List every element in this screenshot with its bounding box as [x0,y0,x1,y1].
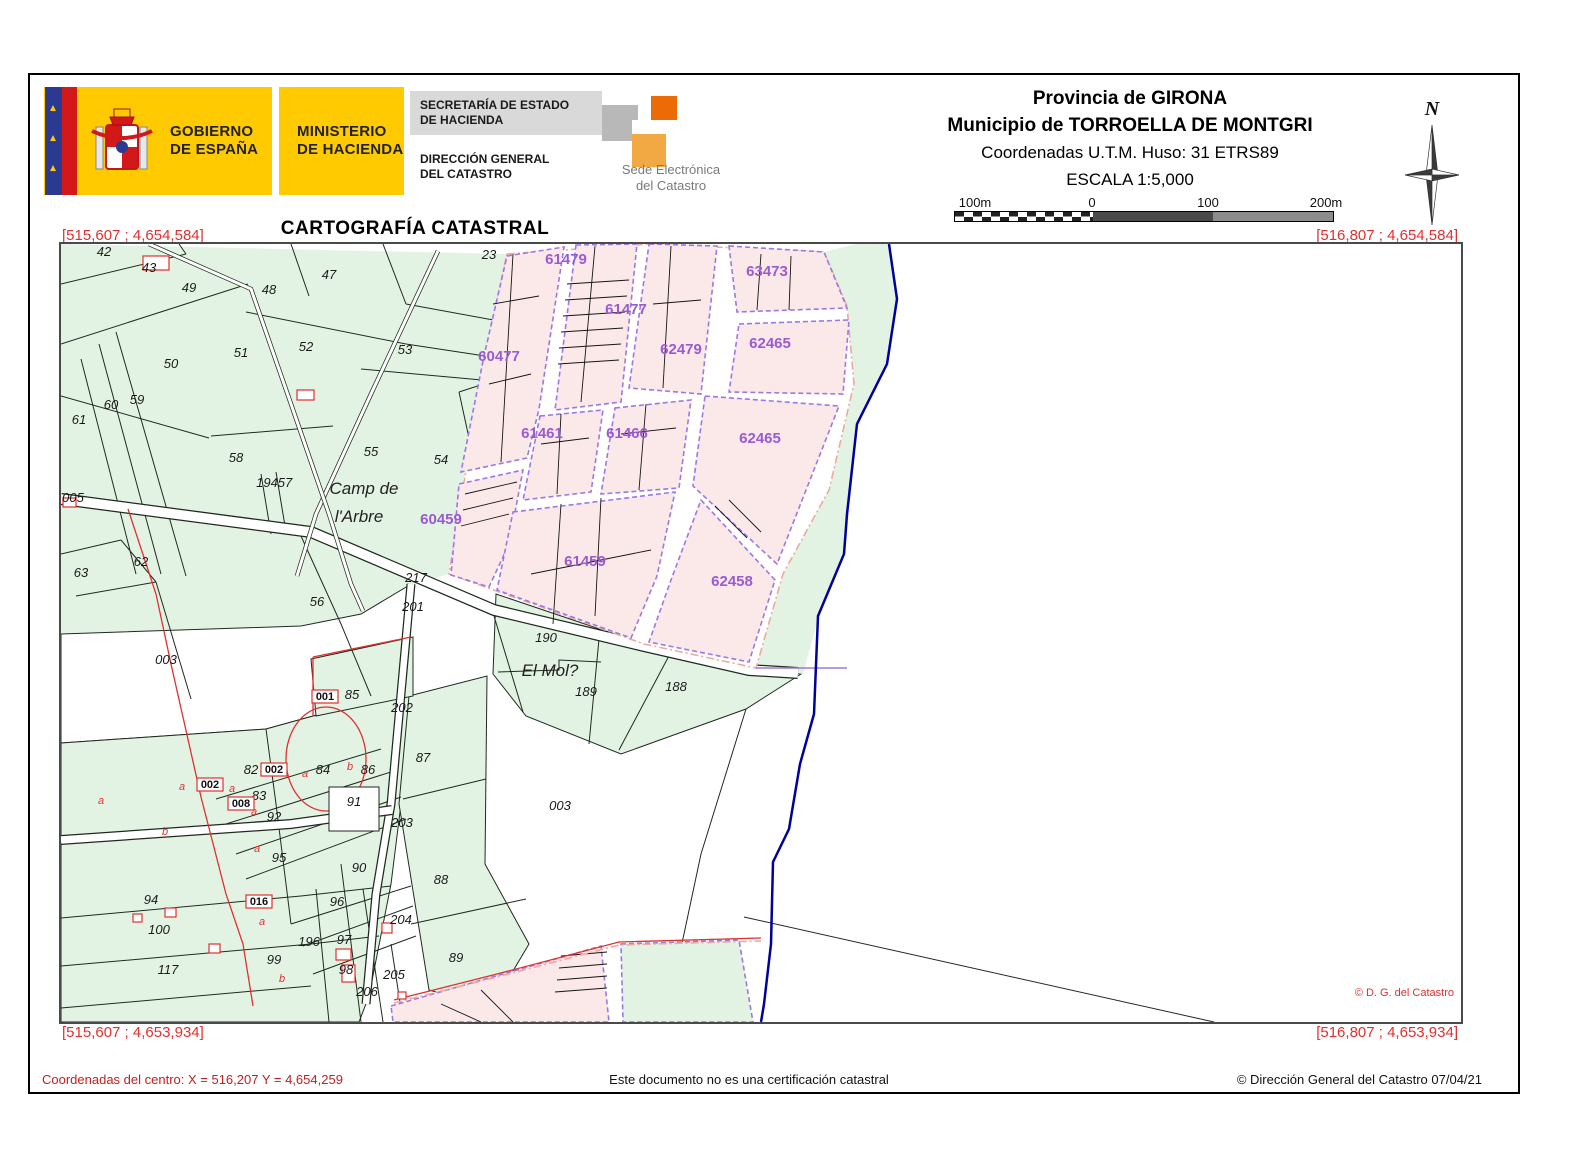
urban-block-62465-top [729,320,849,394]
parcel-label: 59 [130,392,144,407]
building-label: 008 [232,798,250,810]
subparcel-letter-label: a [229,783,235,795]
parcel-label: 54 [434,452,448,467]
urban-parcel-label: 60459 [420,511,462,528]
urban-parcel-label: 62479 [660,341,702,358]
sede-label-line1: Sede Electrónica [576,162,766,178]
urban-parcel-label: 61459 [564,553,606,570]
parcel-label: 23 [481,247,497,262]
secretaria-estado-block: SECRETARÍA DE ESTADO DE HACIENDA [410,91,602,135]
gobierno-espana-logo: GOBIERNO DE ESPAÑA [44,87,272,195]
ministerio-label-line2: DE HACIENDA [297,141,403,159]
parcel-label: 82 [244,762,259,777]
sede-logo-white-square-icon [632,120,650,134]
parcel-label: 58 [229,450,244,465]
parcel-label: 90 [352,860,367,875]
parcel-label: 62 [134,554,149,569]
urban-parcel-label: 61477 [605,301,647,318]
direccion-line2: DEL CATASTRO [420,167,549,182]
corner-coordinate-bottom-right: [516,807 ; 4,653,934] [1316,1024,1458,1041]
urban-parcel-label: 61466 [606,425,648,442]
document-page: GOBIERNO DE ESPAÑA MINISTERIO DE HACIEND… [28,73,1520,1094]
parcel-label: 99 [267,952,281,967]
parcel-label: 94 [144,892,158,907]
parcel-label: 96 [330,894,345,909]
scalebar-label-100: 100 [1197,195,1219,210]
parcel-label: 97 [337,932,352,947]
corner-coordinate-bottom-left: [515,607 ; 4,653,934] [62,1024,204,1041]
parcel-label: 206 [355,984,378,999]
urban-parcel-label: 63473 [746,263,788,280]
utm-coordinates-line: Coordenadas U.T.M. Huso: 31 ETRS89 [880,139,1380,166]
parcel-label: 005 [62,490,84,505]
parcel-label: 194 [256,475,278,490]
parcel-label: 49 [182,280,196,295]
map-sheet-header: Provincia de GIRONA Municipio de TORROEL… [880,85,1380,193]
cadastral-document-page: { "header": { "logo": { "gobierno_line1"… [0,0,1595,1158]
scale-bar: 100m 0 100 200m [954,195,1332,225]
spain-flag-emblem-icon [44,87,164,195]
parcel-label: 85 [345,687,360,702]
gobierno-label-line2: DE ESPAÑA [170,141,258,159]
map-title: CARTOGRAFÍA CATASTRAL [210,218,620,240]
parcel-label: 63 [74,565,89,580]
subparcel-letter-label: b [162,826,168,838]
cadastral-map-viewport[interactable]: 4243494847235051525360596158555419457005… [59,242,1463,1024]
provincia-title: Provincia de GIRONA [880,85,1380,112]
subparcel-letter-label: a [179,781,185,793]
parcel-label: 48 [262,282,277,297]
compass-n-label: N [1424,98,1441,120]
urban-parcel-label: 60477 [478,348,520,365]
sede-logo-orange-square-icon [651,96,677,120]
parcel-label: 92 [267,809,282,824]
parcel-label: 87 [416,750,431,765]
parcel-label: 117 [158,962,179,977]
parcel-label: 201 [401,599,424,614]
parcel-label: 100 [148,922,170,937]
scalebar-label-100m-left: 100m [959,195,992,210]
parcel-label: 84 [316,762,330,777]
urban-parcel-label: 62458 [711,573,753,590]
cadastral-map[interactable]: 4243494847235051525360596158555419457005… [61,244,1461,1022]
urban-parcel-label: 61479 [545,251,587,268]
parcel-label: 88 [434,872,449,887]
center-coordinates-label: Coordenadas del centro: X = 516,207 Y = … [42,1072,343,1087]
parcel-label: 196 [298,934,320,949]
parcel-label: 203 [390,815,413,830]
secretaria-line1: SECRETARÍA DE ESTADO [420,98,569,113]
parcel-label: 98 [339,962,354,977]
parcel-label: 189 [575,684,597,699]
parcel-label: 205 [382,967,405,982]
compass-rose-icon: N [1404,95,1462,227]
footer-copyright-label: © Dirección General del Catastro 07/04/2… [1237,1072,1482,1087]
ministerio-hacienda-logo: MINISTERIO DE HACIENDA [279,87,404,195]
place-name-label: Camp de [330,479,399,498]
secretaria-line2: DE HACIENDA [420,113,569,128]
municipio-title: Municipio de TORROELLA DE MONTGRI [880,112,1380,139]
urban-parcel-label: 61461 [521,425,563,442]
scale-line: ESCALA 1:5,000 [880,166,1380,193]
parcel-label: 003 [155,652,177,667]
urban-parcel-label: 62465 [739,430,781,447]
subparcel-letter-label: a [254,843,260,855]
parcel-label: 217 [404,570,427,585]
place-name-label: l'Arbre [335,507,384,526]
parcel-label: 91 [347,794,361,809]
building-label: 002 [265,764,283,776]
disclaimer-label: Este documento no es una certificación c… [584,1072,914,1087]
building-label: 001 [316,691,334,703]
subparcel-letter-label: a [98,795,104,807]
scalebar-label-0: 0 [1088,195,1095,210]
subparcel-letter-label: a [259,916,265,928]
urban-parcel-label: 62465 [749,335,791,352]
parcel-label: 47 [322,267,337,282]
parcel-label: 190 [535,630,557,645]
parcel-label: 50 [164,356,179,371]
parcel-label: 53 [398,342,413,357]
parcel-label: 86 [361,762,376,777]
parcel-label: 43 [142,260,157,275]
gobierno-label-line1: GOBIERNO [170,123,258,141]
scale-bar-graphic [954,211,1334,222]
parcel-label: 95 [272,850,287,865]
parcel-label: 42 [97,244,112,259]
subparcel-letter-label: b [347,761,353,773]
place-name-label: El Mol? [522,661,579,680]
building-label: 016 [250,896,268,908]
parcel-label: 51 [234,345,248,360]
parcel-label: 61 [72,412,86,427]
parcel-label: 60 [104,397,119,412]
direccion-line1: DIRECCIÓN GENERAL [420,152,549,167]
sede-label-line2: del Catastro [576,178,766,194]
parcel-label: 89 [449,950,463,965]
subparcel-letter-label: b [279,973,285,985]
parcel-label: 52 [299,339,314,354]
parcel-label: 188 [665,679,687,694]
scalebar-label-200m: 200m [1310,195,1343,210]
urban-block-61466 [601,400,691,494]
parcel-label: 003 [549,798,571,813]
ministerio-label-line1: MINISTERIO [297,123,403,141]
building-label: 002 [201,779,219,791]
parcel-label: 202 [390,700,413,715]
map-copyright-label: © D. G. del Catastro [1355,987,1454,999]
parcel-label: 57 [278,475,293,490]
subparcel-letter-label: a [302,768,308,780]
sede-electronica-logo: Sede Electrónica del Catastro [596,90,746,200]
parcel-label: 204 [389,912,412,927]
parcel-label: 56 [310,594,325,609]
parcel-label: 55 [364,444,379,459]
